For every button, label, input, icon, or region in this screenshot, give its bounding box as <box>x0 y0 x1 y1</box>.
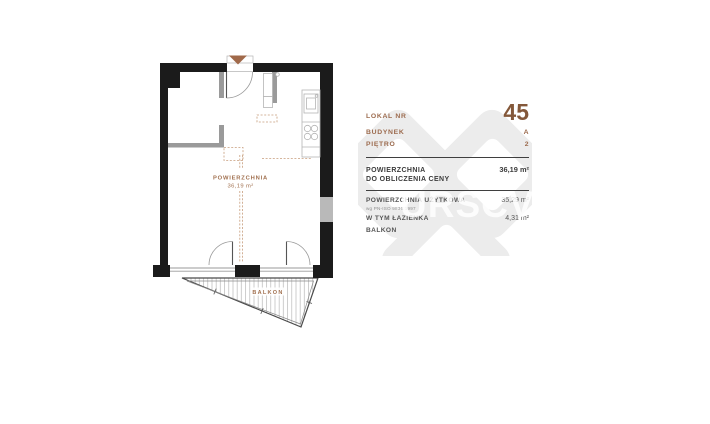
budynek-label: BUDYNEK <box>366 129 405 136</box>
separator <box>366 157 529 158</box>
pietro-label: PIĘTRO <box>366 141 396 148</box>
usable-area-row: POWIERZCHNIA UŻYTKOWA wg PN-ISO 9836:199… <box>366 197 529 212</box>
pietro-value: 2 <box>525 141 529 148</box>
usable-area-value: 35,29 m² <box>501 197 529 204</box>
interior-walls <box>168 72 277 148</box>
pietro-row: PIĘTRO 2 <box>366 141 529 148</box>
price-area-row: POWIERZCHNIA DO OBLICZENIA CENY 36,19 m² <box>366 165 529 185</box>
price-area-label: POWIERZCHNIA DO OBLICZENIA CENY <box>366 167 450 185</box>
balcony-label: BALKON <box>252 290 283 296</box>
room-area-label: POWIERZCHNIA 36,19 m² <box>213 176 268 190</box>
budynek-row: BUDYNEK A <box>366 129 529 136</box>
lokal-number: 45 <box>503 101 529 124</box>
kitchen <box>302 90 320 157</box>
budynek-value: A <box>524 129 529 136</box>
lokal-label: LOKAL NR <box>366 113 407 120</box>
balcony: BALKON <box>182 278 318 327</box>
separator <box>366 190 529 191</box>
floor-plan: BALKON <box>148 45 348 337</box>
price-area-value: 36,19 m² <box>499 165 529 174</box>
bathroom-label: W TYM ŁAZIENKA <box>366 215 429 223</box>
balcony-row-label: BALKON <box>366 227 397 235</box>
balcony-row: BALKON <box>366 227 529 235</box>
right-wall-window <box>320 197 333 222</box>
usable-area-norm: wg PN-ISO 9836:1997 <box>366 206 416 211</box>
junction-symbol <box>276 73 280 77</box>
sink-tap <box>315 95 318 98</box>
area-value: 36,19 m² <box>227 184 253 190</box>
bathroom-row: W TYM ŁAZIENKA 4,31 m² <box>366 215 529 223</box>
usable-area-label: POWIERZCHNIA UŻYTKOWA wg PN-ISO 9836:199… <box>366 197 465 212</box>
bathroom-value: 4,31 m² <box>505 215 529 222</box>
floor-plan-page: BALKON <box>0 0 710 424</box>
area-label: POWIERZCHNIA <box>213 176 268 182</box>
unit-info-card: LOKAL NR 45 BUDYNEK A PIĘTRO 2 POWIERZCH… <box>358 98 532 256</box>
